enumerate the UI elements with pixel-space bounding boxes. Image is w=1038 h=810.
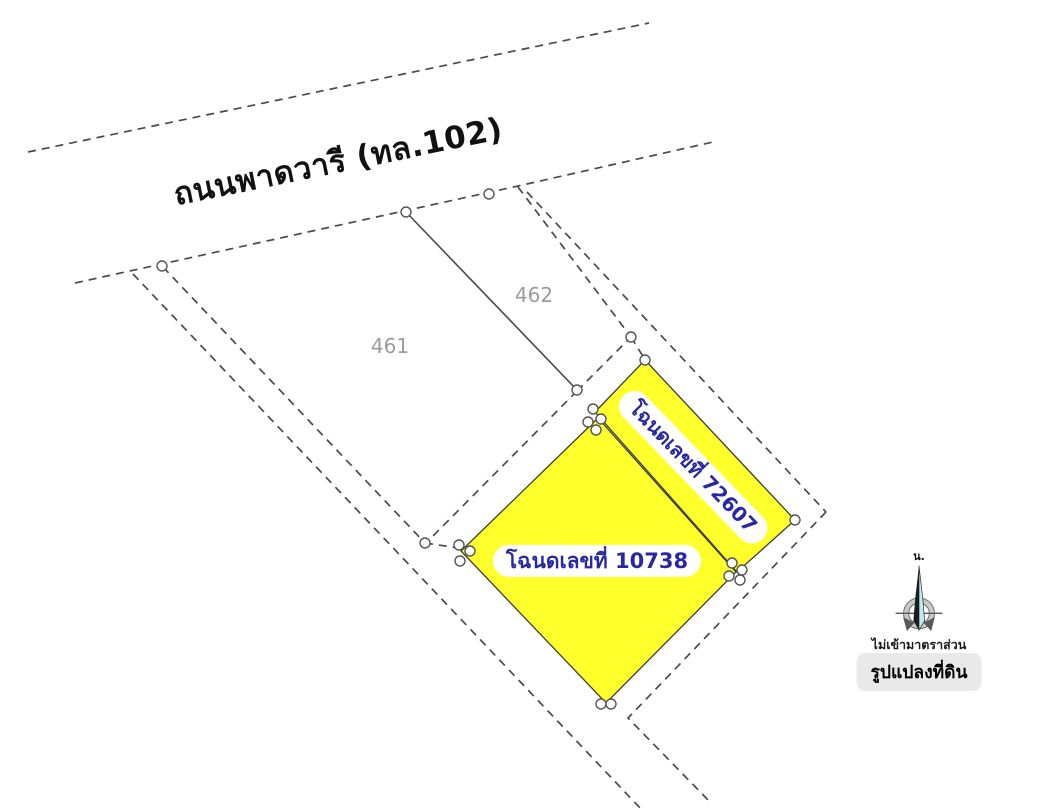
not-to-scale-note: ไม่เข้ามาตราส่วน bbox=[872, 635, 967, 655]
vertex-marker bbox=[591, 425, 601, 435]
plot-462-number: 462 bbox=[515, 283, 553, 307]
vertex-marker bbox=[626, 332, 636, 342]
vertex-marker bbox=[454, 540, 464, 550]
deed-10738-label: โฉนดเลขที่ 10738 bbox=[493, 545, 701, 577]
vertex-marker bbox=[724, 571, 734, 581]
plot-461-number: 461 bbox=[371, 334, 409, 358]
figure-caption-box: รูปแปลงที่ดิน bbox=[856, 653, 981, 691]
road-top-dashed-line bbox=[28, 23, 649, 152]
vertex-marker bbox=[583, 417, 593, 427]
vertex-marker bbox=[640, 355, 650, 365]
vertex-marker bbox=[737, 565, 747, 575]
vertex-marker bbox=[484, 189, 494, 199]
compass-needle-dark-blade bbox=[913, 566, 919, 631]
vertex-marker bbox=[606, 699, 616, 709]
vertex-marker bbox=[588, 404, 598, 414]
vertex-marker bbox=[735, 575, 745, 585]
vertex-marker bbox=[157, 261, 167, 271]
vertex-marker bbox=[465, 546, 475, 556]
vertex-marker bbox=[790, 515, 800, 525]
compass-needle-light-blade bbox=[919, 566, 925, 631]
vertex-marker bbox=[727, 558, 737, 568]
land-plot-map: ถนนพาดวารี (ทล.102) 461 462 โฉนดเลขที่ 7… bbox=[0, 0, 1038, 810]
vertex-marker bbox=[420, 538, 430, 548]
vertex-marker bbox=[455, 556, 465, 566]
vertex-marker bbox=[596, 414, 606, 424]
plot461-west-dashed-line bbox=[163, 267, 425, 543]
vertex-marker bbox=[572, 385, 582, 395]
lane-east-dashed-line bbox=[518, 187, 631, 337]
vertex-marker bbox=[401, 207, 411, 217]
vertex-marker bbox=[596, 699, 606, 709]
